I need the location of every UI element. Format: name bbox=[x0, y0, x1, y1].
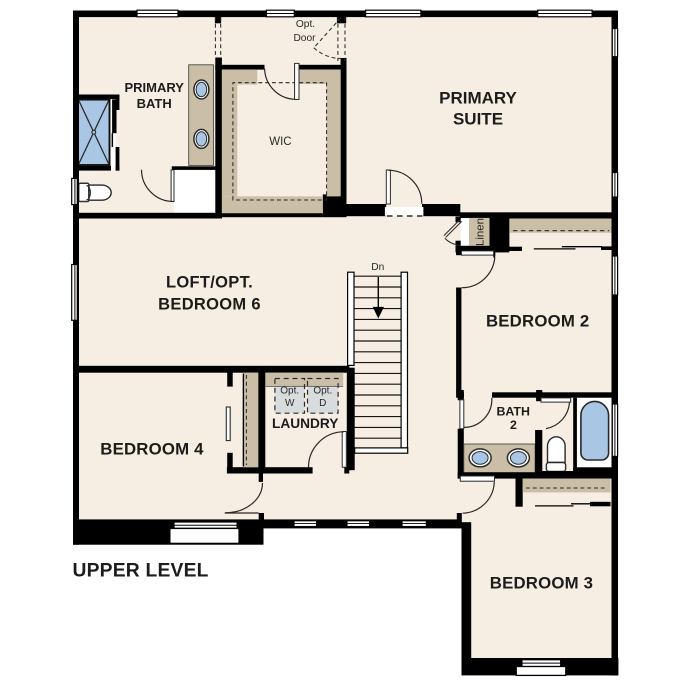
svg-text:BEDROOM 3: BEDROOM 3 bbox=[490, 574, 593, 593]
svg-text:Dn: Dn bbox=[371, 262, 384, 273]
svg-text:Opt.: Opt. bbox=[280, 385, 299, 396]
svg-text:WIC: WIC bbox=[269, 136, 291, 148]
svg-text:BATH: BATH bbox=[496, 404, 530, 418]
svg-text:BATH: BATH bbox=[137, 96, 172, 111]
svg-text:Opt.: Opt. bbox=[313, 385, 332, 396]
svg-text:Opt.: Opt. bbox=[296, 19, 315, 30]
svg-text:Linen: Linen bbox=[474, 218, 486, 246]
svg-text:LAUNDRY: LAUNDRY bbox=[272, 416, 338, 431]
svg-text:2: 2 bbox=[510, 418, 517, 432]
svg-text:BEDROOM 2: BEDROOM 2 bbox=[486, 312, 589, 331]
svg-text:PRIMARY: PRIMARY bbox=[124, 80, 184, 95]
svg-text:D: D bbox=[319, 398, 326, 409]
svg-text:BEDROOM 4: BEDROOM 4 bbox=[100, 439, 204, 458]
svg-text:Door: Door bbox=[293, 33, 316, 44]
svg-text:SUITE: SUITE bbox=[453, 110, 503, 129]
svg-text:UPPER LEVEL: UPPER LEVEL bbox=[73, 560, 209, 581]
svg-text:LOFT/OPT.: LOFT/OPT. bbox=[166, 274, 253, 292]
svg-text:BEDROOM 6: BEDROOM 6 bbox=[158, 296, 261, 314]
svg-text:PRIMARY: PRIMARY bbox=[439, 89, 517, 108]
svg-text:W: W bbox=[285, 398, 295, 409]
